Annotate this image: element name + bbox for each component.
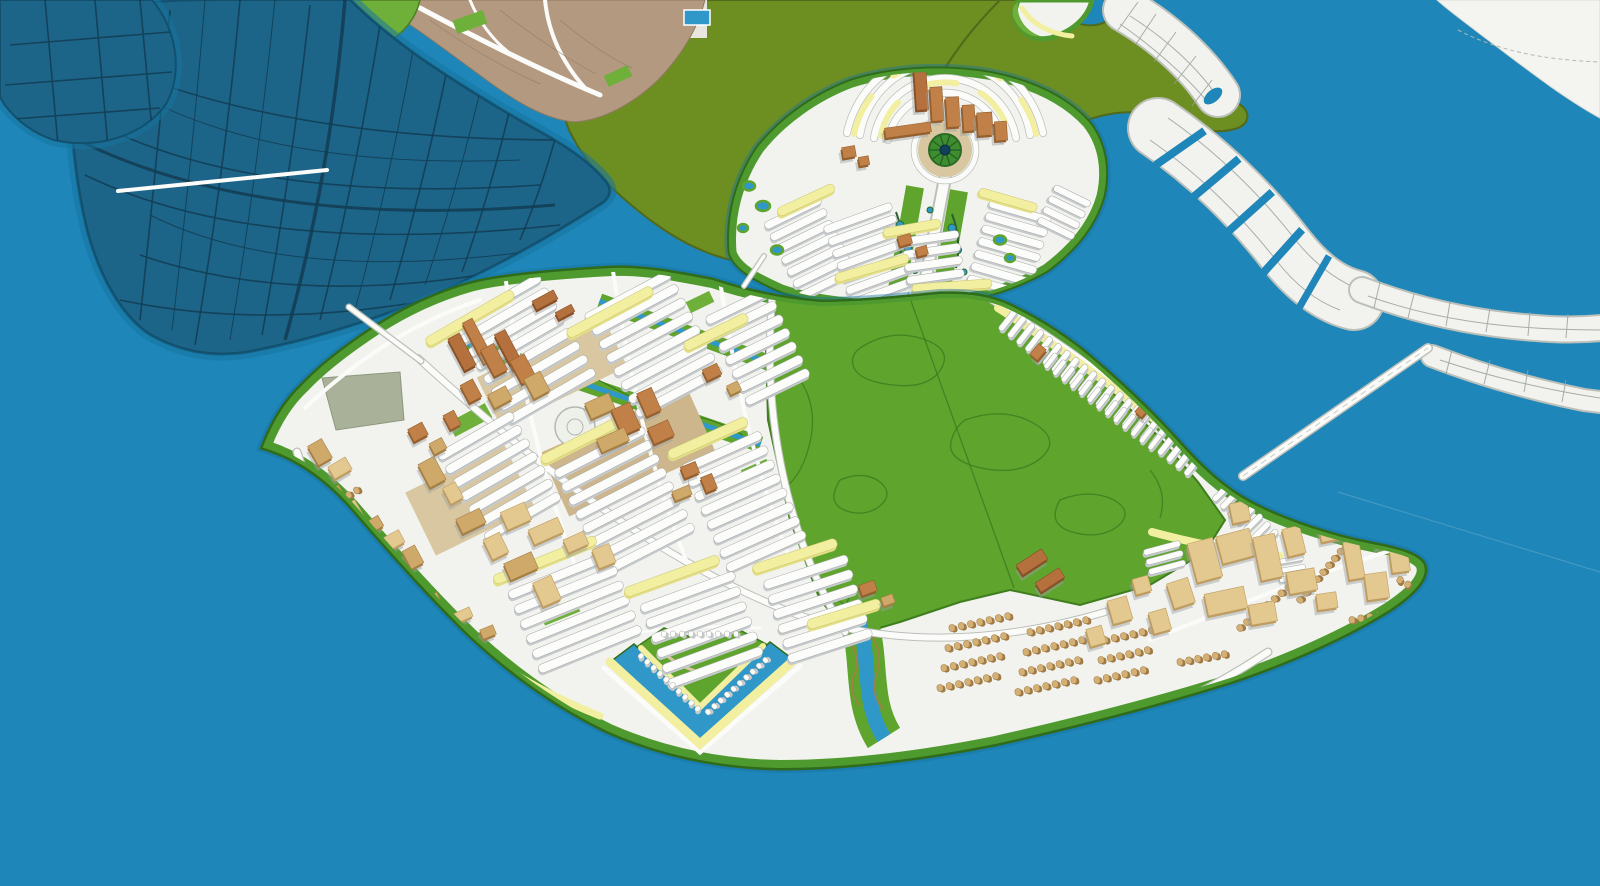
lagoon-pocket	[771, 246, 783, 255]
tan-building	[1360, 572, 1390, 606]
lagoon-pocket	[1005, 254, 1015, 262]
lagoon-pocket	[994, 236, 1006, 245]
brown-building	[941, 97, 960, 133]
masterplan-canvas	[0, 0, 1600, 886]
brown-building	[926, 87, 945, 127]
lagoon-pocket	[743, 182, 755, 191]
building-row	[662, 631, 741, 639]
tan-building	[1245, 601, 1279, 630]
garden-pond	[927, 207, 933, 213]
corner-island-ground	[0, 0, 176, 143]
masterplan-render	[0, 0, 1600, 886]
brown-building	[990, 121, 1008, 146]
lagoon-pocket	[738, 224, 748, 232]
lagoon-pocket	[756, 201, 770, 211]
brown-building	[973, 112, 994, 141]
mainland-pool	[684, 10, 710, 25]
tan-building	[1282, 568, 1318, 600]
